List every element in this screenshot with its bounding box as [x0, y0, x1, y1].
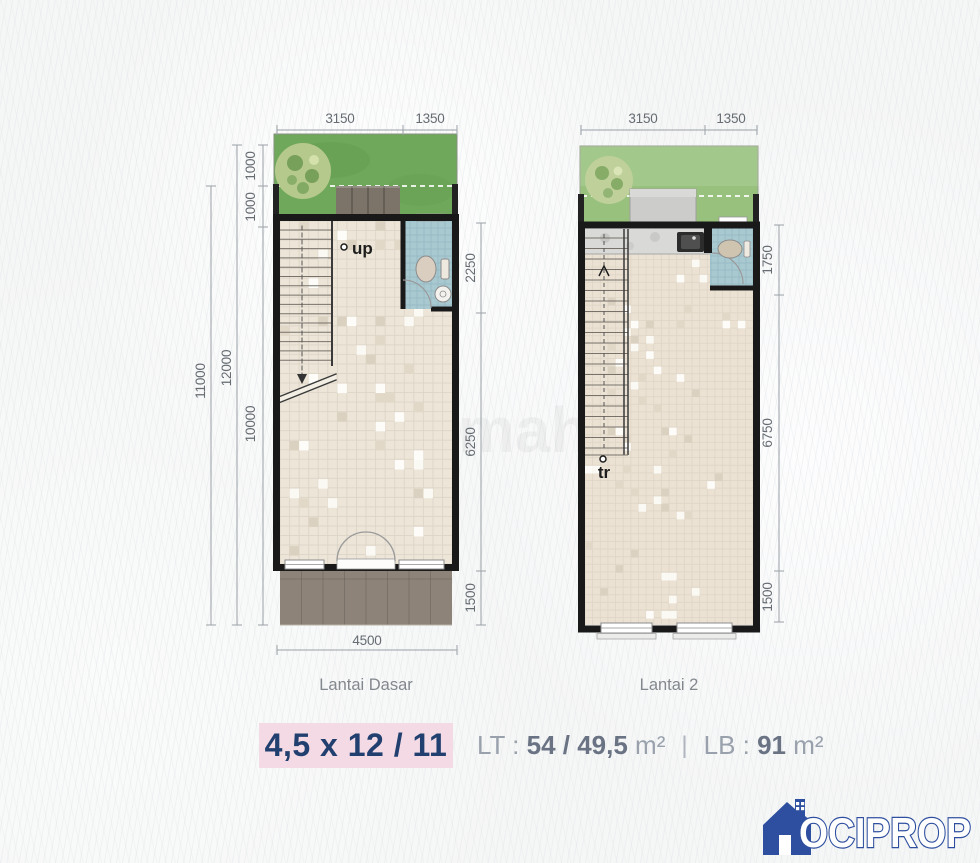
sink-icon	[435, 286, 451, 302]
dim-bottom-4500: 4500	[352, 633, 381, 648]
ociprop-logo: OCIPROP	[755, 789, 980, 863]
dim-left-1000b: 1000	[243, 192, 258, 221]
ociprop-logo-text: OCIPROP	[799, 809, 971, 856]
left-plan-title: Lantai Dasar	[319, 676, 413, 694]
dim-right-2250: 2250	[463, 253, 478, 282]
garden-tree	[585, 156, 633, 204]
dim-top-3150: 3150	[628, 111, 657, 126]
toilet-icon	[416, 256, 449, 282]
dim-right-6250: 6250	[463, 427, 478, 456]
lb-value: 91	[757, 730, 786, 761]
floorplan-poster: rumah123	[0, 0, 980, 863]
left-floorplan: up	[193, 111, 486, 694]
dim-right-6750: 6750	[760, 418, 775, 447]
carport	[280, 571, 452, 625]
tr-label: tr	[598, 463, 611, 482]
dim-left-12000: 12000	[219, 350, 234, 387]
dim-left-1000a: 1000	[243, 151, 258, 180]
lt-value: 54 / 49,5	[527, 730, 628, 761]
dim-right-1750: 1750	[760, 245, 775, 274]
lt-label: LT :	[477, 730, 527, 761]
size-badge-text: 4,5 x 12 / 11	[265, 727, 448, 764]
size-badge: 4,5 x 12 / 11	[259, 723, 453, 768]
toilet-icon	[718, 240, 750, 258]
lt-unit: m²	[628, 730, 666, 761]
land-building-spec: LT : 54 / 49,5 m²|LB : 91 m²	[477, 723, 824, 768]
dim-right-1500: 1500	[463, 583, 478, 612]
kitchen-sink-icon	[677, 232, 704, 252]
dim-left-10000: 10000	[243, 406, 258, 443]
dim-right-1500: 1500	[760, 582, 775, 611]
lb-label: LB :	[704, 730, 757, 761]
up-label: up	[352, 239, 373, 258]
roof-garden	[578, 146, 759, 222]
dim-top-1350: 1350	[415, 111, 444, 126]
dim-left-11000: 11000	[193, 363, 208, 399]
spec-divider: |	[681, 732, 687, 760]
bathroom-ground	[403, 214, 452, 309]
dim-top-1350: 1350	[716, 111, 745, 126]
right-plan-title: Lantai 2	[640, 676, 699, 694]
dim-top-3150: 3150	[325, 111, 354, 126]
right-floorplan: tr	[578, 111, 784, 694]
lb-unit: m²	[786, 730, 824, 761]
garden-tree	[275, 143, 331, 199]
ociprop-logo-graphic: OCIPROP	[755, 789, 980, 861]
